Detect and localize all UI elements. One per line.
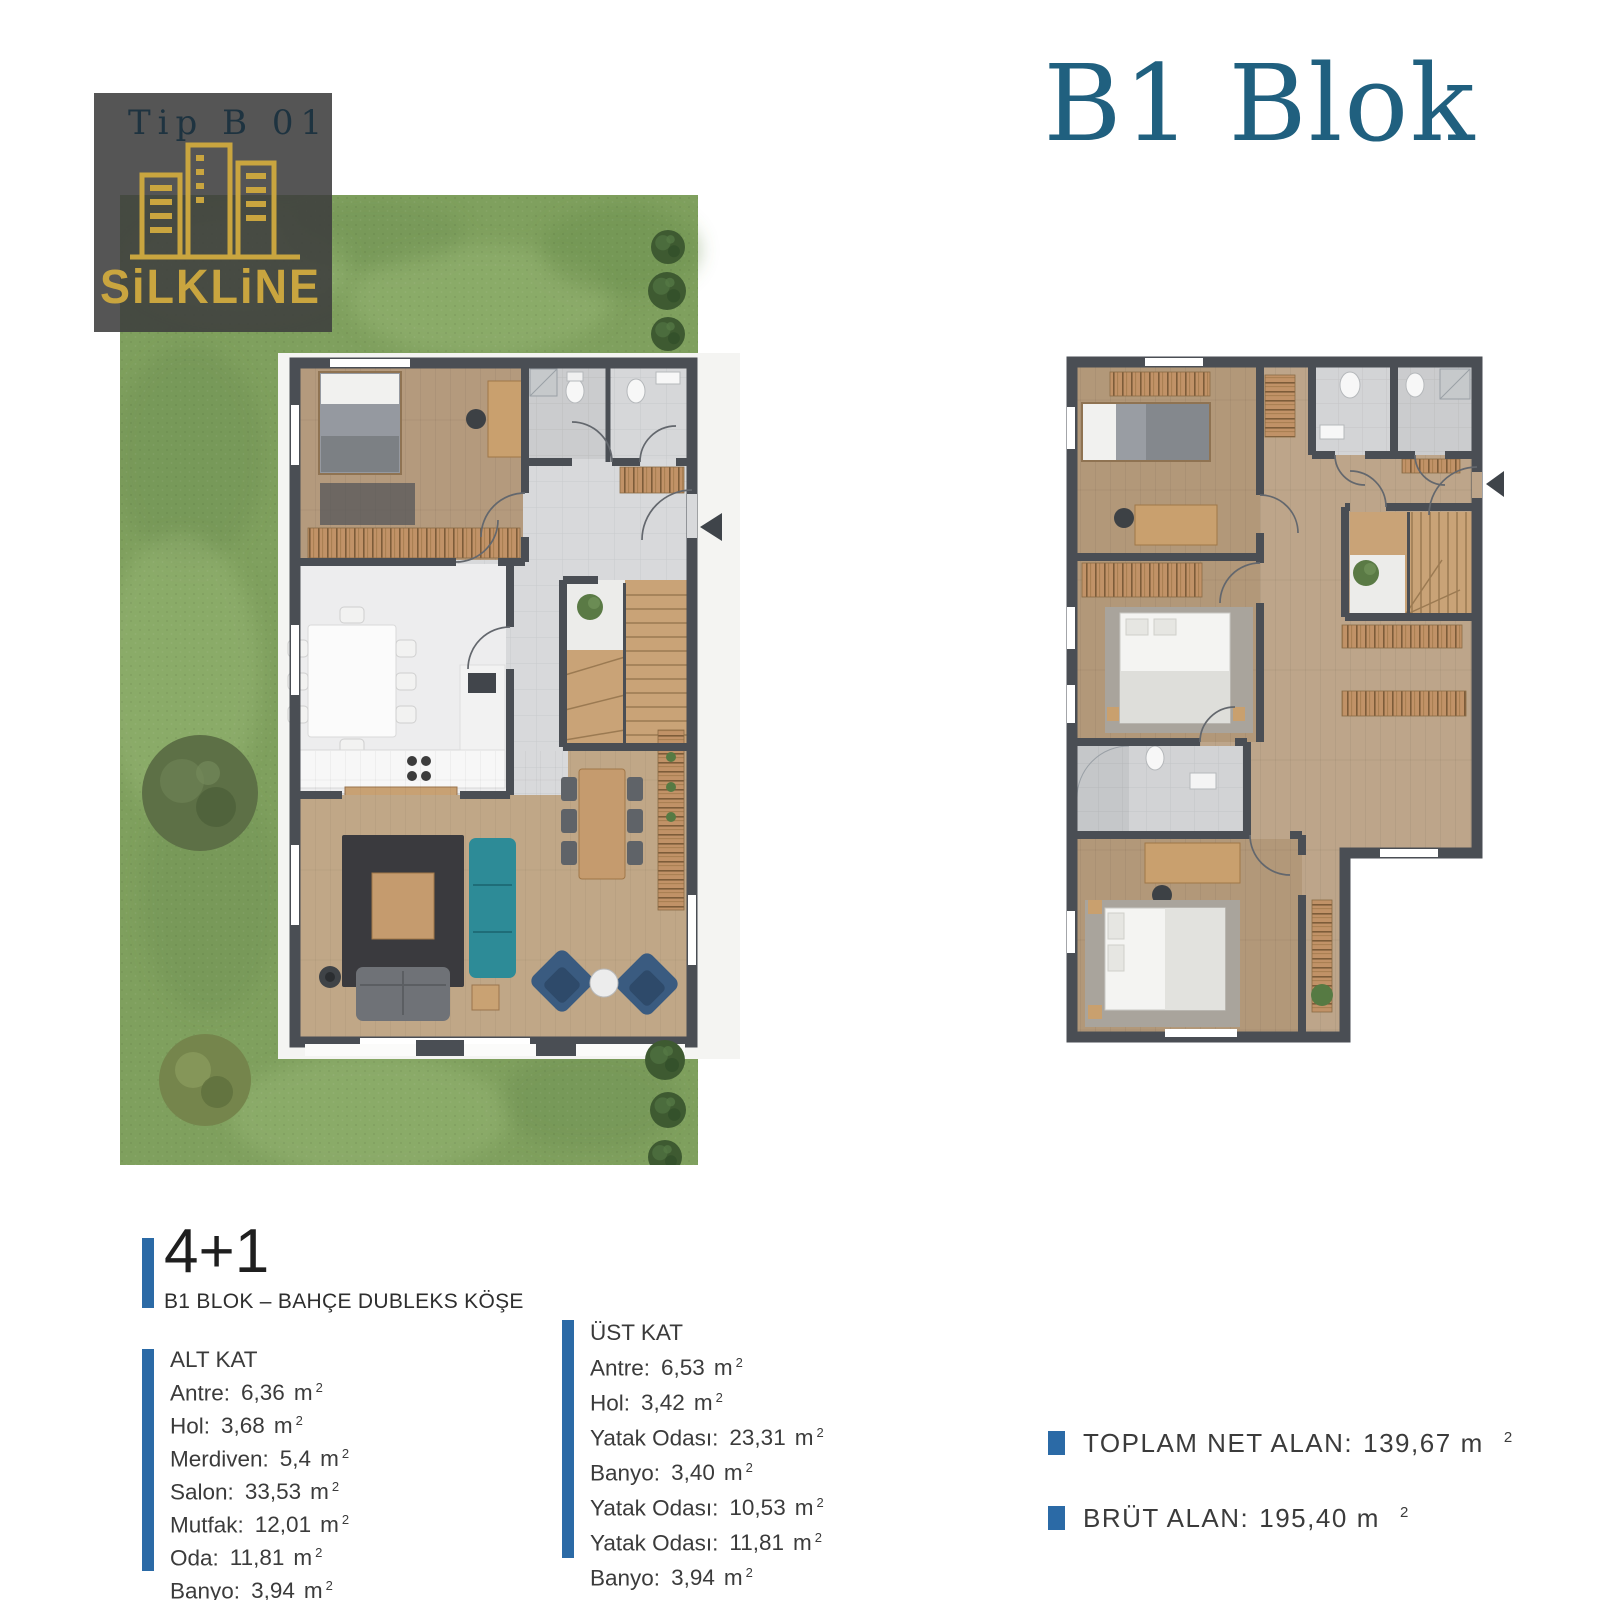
plant-icon	[1311, 984, 1333, 1006]
wardrobe	[308, 528, 520, 558]
room-banyo-ust-kucuk	[1077, 746, 1247, 835]
bed	[1120, 613, 1230, 723]
brand-name: SiLKLiNE	[100, 259, 321, 315]
kitchen-table	[308, 625, 396, 737]
desk-chair	[1114, 508, 1134, 528]
area-row: Merdiven:5,4m2	[170, 1440, 349, 1473]
sink	[468, 673, 496, 693]
nightstand	[1107, 707, 1119, 721]
area-row: Hol:3,68m2	[170, 1407, 349, 1440]
page-title: B1 Blok	[1020, 42, 1500, 165]
area-row: Yatak Odası:11,81m2	[590, 1523, 824, 1558]
wardrobe	[1082, 563, 1202, 597]
area-row: Yatak Odası:10,53m2	[590, 1488, 824, 1523]
toilet	[627, 379, 645, 403]
nightstand	[1088, 1005, 1102, 1019]
total-net-area: TOPLAM NET ALAN:139,67m2	[1048, 1428, 1514, 1459]
desk	[1145, 843, 1240, 883]
room-oda	[299, 367, 523, 560]
room-yatak-odasi-2	[1077, 561, 1260, 742]
floor-title: ALT KAT	[170, 1346, 349, 1374]
entrance-arrow	[1486, 471, 1504, 497]
dining-table	[561, 769, 643, 879]
toilet	[1340, 372, 1360, 398]
area-row: Yatak Odası:23,31m2	[590, 1418, 824, 1453]
rug	[320, 483, 415, 525]
area-row: Antre:6,53m2	[590, 1348, 824, 1383]
room-yatak-odasi-1	[1077, 367, 1260, 557]
room-banyo-ust-1	[1312, 367, 1394, 455]
round-table	[590, 969, 618, 997]
unit-subtitle: B1 BLOK – BAHÇE DUBLEKS KÖŞE	[164, 1290, 524, 1314]
sink	[656, 372, 680, 384]
area-row: Banyo:3,94m2	[590, 1558, 824, 1593]
accent-bar	[142, 1238, 154, 1308]
area-row: Antre:6,36m2	[170, 1374, 349, 1407]
toilet	[1146, 746, 1164, 770]
room-salon	[300, 730, 688, 1038]
bullet-icon	[1048, 1506, 1065, 1530]
tree-icon	[142, 735, 258, 851]
brochure-page: Tip B 01 SiLKLiNE B1 Blok 4+1 B1 BLOK – …	[0, 0, 1600, 1600]
room-banyo-ust-2	[1398, 367, 1472, 455]
plant-icon	[666, 782, 676, 792]
area-row: Oda:11,81m2	[170, 1539, 349, 1572]
area-row: Banyo:3,94m2	[170, 1572, 349, 1600]
desk-chair	[466, 409, 486, 429]
sink	[1190, 773, 1216, 789]
bookshelf	[1265, 375, 1295, 437]
room-antre	[620, 467, 684, 493]
shelf	[620, 467, 684, 493]
sofa-gray	[356, 967, 450, 1021]
bullet-icon	[1048, 1431, 1065, 1455]
bed	[1082, 403, 1210, 461]
nightstand	[1088, 900, 1102, 914]
toilet	[566, 379, 584, 403]
sink	[1320, 425, 1344, 439]
shelf	[1402, 459, 1460, 473]
accent-bar	[562, 1320, 574, 1558]
floor-plan-ust-kat	[1050, 355, 1510, 1055]
floor-title: ÜST KAT	[590, 1318, 824, 1348]
building-ust-kat	[1067, 358, 1482, 1037]
toilet	[1406, 373, 1424, 397]
total-gross-area: BRÜT ALAN:195,40m2	[1048, 1503, 1410, 1534]
bookshelf	[1342, 691, 1466, 716]
bed	[1105, 908, 1225, 1010]
area-row: Mutfak:12,01m2	[170, 1506, 349, 1539]
tree-icon	[159, 1034, 251, 1126]
coffee-table	[372, 873, 434, 939]
buildings-icon	[122, 135, 307, 263]
plant-icon	[666, 812, 676, 822]
area-row: Hol:3,42m2	[590, 1383, 824, 1418]
bookshelf	[1342, 625, 1462, 648]
area-row: Salon:33,53m2	[170, 1473, 349, 1506]
sofa-teal	[469, 838, 516, 978]
desk	[488, 381, 522, 457]
nightstand	[1233, 707, 1245, 721]
accent-bar	[142, 1349, 154, 1571]
side-table	[472, 985, 499, 1010]
ust-kat-list: ÜST KAT Antre:6,53m2 Hol:3,42m2 Yatak Od…	[590, 1318, 824, 1593]
alt-kat-list: ALT KAT Antre:6,36m2 Hol:3,68m2 Merdiven…	[170, 1346, 349, 1600]
building-alt-kat	[288, 359, 697, 1056]
desk	[1135, 505, 1217, 545]
unit-type: 4+1	[164, 1216, 269, 1287]
floor-plan-alt-kat	[120, 195, 740, 1165]
area-row: Banyo:3,40m2	[590, 1453, 824, 1488]
stairs-merdiven	[565, 580, 687, 745]
plant-icon	[666, 752, 676, 762]
stairs-ust	[1350, 512, 1472, 615]
silkline-logo: Tip B 01 SiLKLiNE	[94, 93, 332, 332]
bed	[319, 372, 401, 474]
wardrobe	[1110, 372, 1210, 396]
